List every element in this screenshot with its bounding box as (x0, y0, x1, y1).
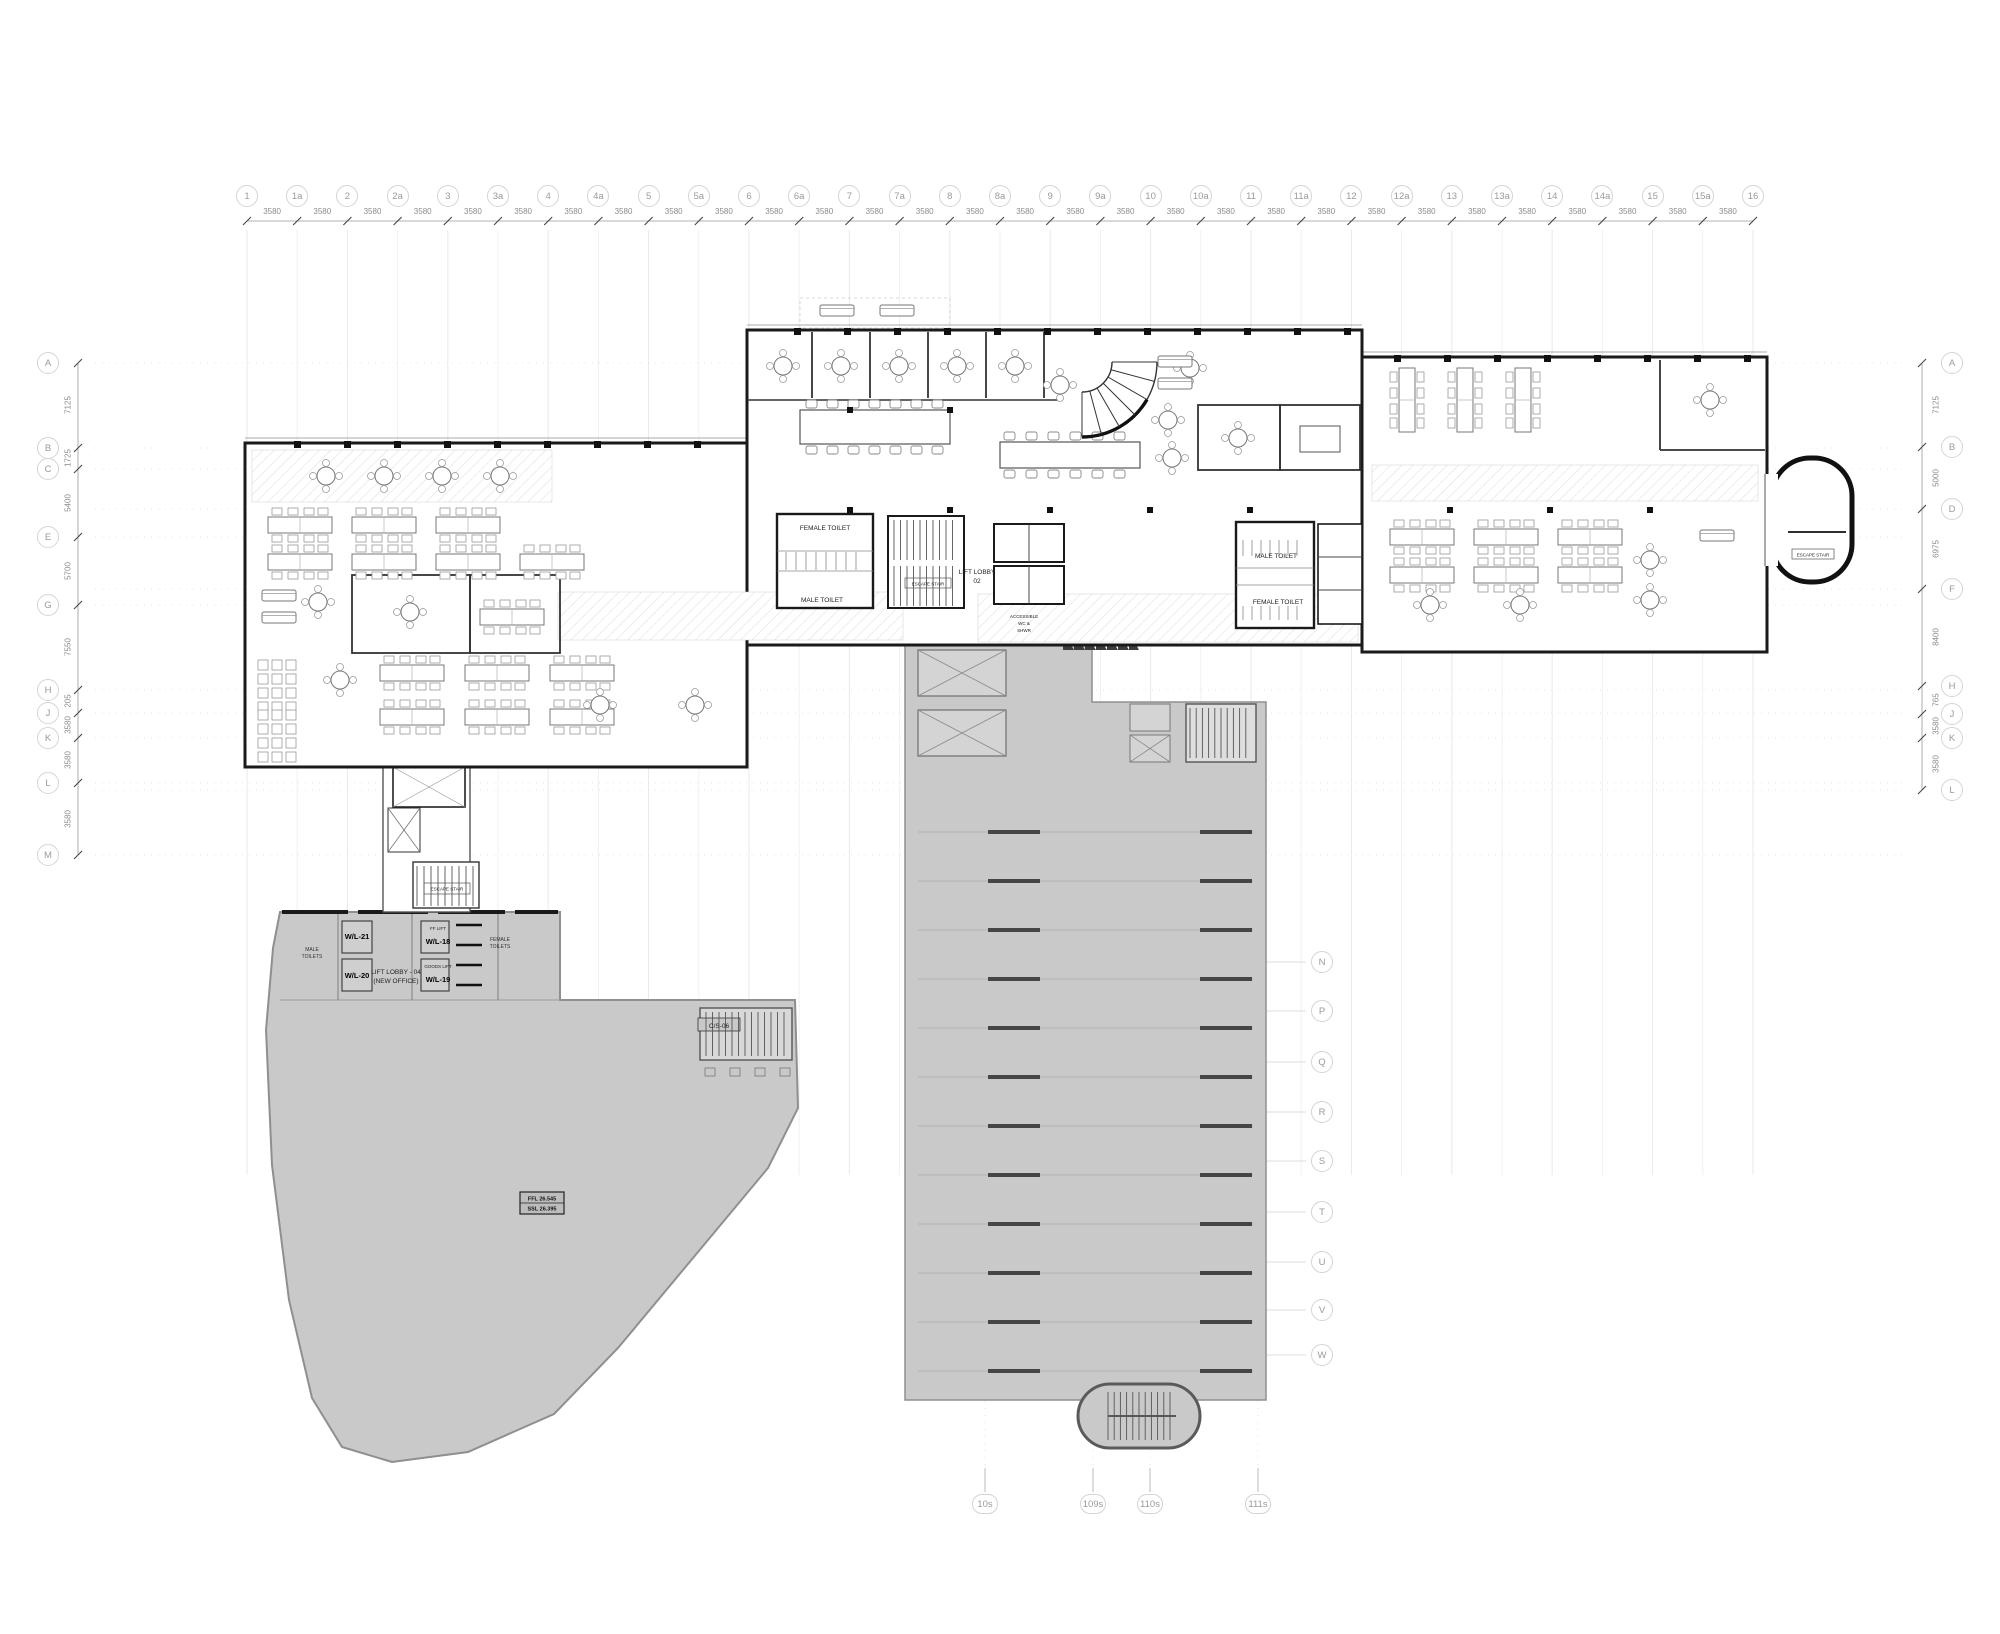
furniture (827, 400, 838, 408)
dimension-label: 1725 (64, 449, 73, 467)
svg-text:TOILETS: TOILETS (302, 954, 323, 960)
dimension-label: 3580 (1518, 207, 1536, 216)
furniture (890, 400, 901, 408)
grid-bubble-16: 16 (1742, 185, 1764, 207)
dimension-label: 7125 (64, 396, 73, 414)
grid-bubble-5: 5 (638, 185, 660, 207)
dimension-label: 3580 (665, 207, 683, 216)
dimension-label: 3580 (1016, 207, 1034, 216)
furniture (1158, 356, 1192, 367)
grid-bubble-U: U (1311, 1251, 1333, 1273)
svg-text:02: 02 (973, 578, 981, 585)
escape-stair-capsule (1762, 458, 1852, 582)
furniture (806, 446, 817, 454)
dimension-label: 3580 (916, 207, 934, 216)
furniture (911, 446, 922, 454)
car-park-deck (905, 630, 1266, 1448)
dimension-label: 3580 (414, 207, 432, 216)
grid-bubble-4a: 4a (587, 185, 609, 207)
dimension-label: 3580 (1719, 207, 1737, 216)
grid-bubble-F: F (1941, 578, 1963, 600)
grid-bubble-110s: 110s (1137, 1494, 1163, 1514)
grid-bubble-A: A (1941, 352, 1963, 374)
label-escape-stair-3: ESCAPE STAIR (1797, 553, 1830, 558)
label-escape-stair-2: ESCAPE STAIR (431, 887, 464, 892)
grid-bubble-H: H (37, 679, 59, 701)
label-female-toilet-right: FEMALE TOILET (1253, 599, 1303, 606)
floor-plan-drawing: FEMALE TOILET MALE TOILET LIFT LOBBY 02 … (0, 0, 2000, 1634)
dimension-label: 7125 (1932, 396, 1941, 414)
label-wl19: W/L-19 (426, 975, 451, 984)
furniture (869, 400, 880, 408)
furniture (1004, 470, 1015, 478)
furniture (848, 400, 859, 408)
dimension-label: 3580 (966, 207, 984, 216)
dimension-label: 765 (1932, 693, 1941, 706)
furniture (1026, 432, 1037, 440)
dimension-label: 3580 (313, 207, 331, 216)
label-lift-lobby-04: LIFT LOBBY - 04 (371, 969, 421, 976)
grid-bubble-2a: 2a (387, 185, 409, 207)
furniture (262, 612, 296, 623)
dimension-label: 3580 (1932, 717, 1941, 735)
dimension-label: 3580 (1066, 207, 1084, 216)
dimension-label: 3580 (64, 810, 73, 828)
grid-bubble-14a: 14a (1591, 185, 1613, 207)
grid-bubble-4: 4 (537, 185, 559, 207)
dimension-label: 3580 (514, 207, 532, 216)
grid-bubble-B: B (37, 437, 59, 459)
grid-bubble-L: L (1941, 779, 1963, 801)
dimension-label: 3580 (263, 207, 281, 216)
grid-bubble-J: J (37, 702, 59, 724)
dimension-label: 3580 (1468, 207, 1486, 216)
dimension-label: 3580 (1368, 207, 1386, 216)
furniture (1026, 470, 1037, 478)
furniture (890, 446, 901, 454)
grid-bubble-10s: 10s (972, 1494, 998, 1514)
dimension-label: 3580 (1267, 207, 1285, 216)
grid-bubble-G: G (37, 594, 59, 616)
dimension-label: 3580 (1619, 207, 1637, 216)
grid-bubble-12a: 12a (1391, 185, 1413, 207)
grid-bubble-1: 1 (236, 185, 258, 207)
label-male-toilet-right: MALE TOILET (1255, 553, 1297, 560)
label-cs06: C/S-06 (709, 1023, 730, 1030)
grid-bubble-S: S (1311, 1150, 1333, 1172)
grid-bubble-111s: 111s (1245, 1494, 1271, 1514)
furniture (262, 590, 296, 601)
grid-bubble-6a: 6a (788, 185, 810, 207)
furniture (1700, 530, 1734, 541)
furniture (1158, 378, 1192, 389)
dimension-label: 3580 (1167, 207, 1185, 216)
dimension-label: 3580 (364, 207, 382, 216)
grid-bubble-T: T (1311, 1201, 1333, 1223)
label-ff-lift: FF LIFT (430, 926, 446, 931)
furniture (820, 305, 854, 316)
grid-bubble-R: R (1311, 1101, 1333, 1123)
grid-bubble-109s: 109s (1080, 1494, 1106, 1514)
grid-bubble-V: V (1311, 1299, 1333, 1321)
label-female-toilets: FEMALE (490, 937, 511, 943)
dimension-label: 5700 (64, 562, 73, 580)
furniture (1070, 432, 1081, 440)
label-accessible-wc: ACCESSIBLE (1010, 614, 1038, 619)
dimension-label: 3580 (866, 207, 884, 216)
furniture (827, 446, 838, 454)
grid-bubble-13: 13 (1441, 185, 1463, 207)
grid-bubble-3: 3 (437, 185, 459, 207)
furniture (848, 446, 859, 454)
dimension-label: 3580 (1568, 207, 1586, 216)
dimension-label: 3580 (1317, 207, 1335, 216)
grid-bubble-1a: 1a (286, 185, 308, 207)
svg-text:(NEW OFFICE): (NEW OFFICE) (373, 978, 418, 985)
grid-bubble-12: 12 (1340, 185, 1362, 207)
grid-bubble-W: W (1311, 1344, 1333, 1366)
dimension-label: 3580 (1932, 755, 1941, 773)
furniture (1092, 470, 1103, 478)
grid-bubble-J: J (1941, 703, 1963, 725)
grid-bubble-10a: 10a (1190, 185, 1212, 207)
grid-bubble-9a: 9a (1089, 185, 1111, 207)
furniture (869, 446, 880, 454)
grid-bubble-2: 2 (336, 185, 358, 207)
grid-bubble-D: D (1941, 498, 1963, 520)
furniture (1048, 470, 1059, 478)
grid-bubble-P: P (1311, 1000, 1333, 1022)
label-ffl: FFL 26.545 (528, 1197, 556, 1203)
grid-bubble-M: M (37, 844, 59, 866)
dimension-label: 205 (64, 694, 73, 707)
svg-text:SHWR: SHWR (1017, 628, 1031, 633)
grid-bubble-K: K (37, 727, 59, 749)
label-wl20: W/L-20 (345, 971, 370, 980)
label-male-toilet: MALE TOILET (801, 597, 843, 604)
label-lift-lobby-02: LIFT LOBBY (959, 569, 996, 576)
furniture (1114, 470, 1125, 478)
dimension-label: 3580 (564, 207, 582, 216)
grid-bubble-11a: 11a (1290, 185, 1312, 207)
grid-bubble-B: B (1941, 436, 1963, 458)
dimension-label: 3580 (715, 207, 733, 216)
grid-bubble-8: 8 (939, 185, 961, 207)
label-wl21: W/L-21 (345, 932, 370, 941)
grid-bubble-3a: 3a (487, 185, 509, 207)
grid-bubble-15: 15 (1642, 185, 1664, 207)
grid-bubble-N: N (1311, 951, 1333, 973)
furniture (880, 305, 914, 316)
dimension-label: 3580 (615, 207, 633, 216)
grid-bubble-A: A (37, 352, 59, 374)
dimension-label: 7550 (64, 638, 73, 656)
furniture (1114, 432, 1125, 440)
dimension-label: 3580 (1217, 207, 1235, 216)
dimension-label: 5400 (64, 494, 73, 512)
furniture (1004, 432, 1015, 440)
grid-bubble-6: 6 (738, 185, 760, 207)
label-female-toilet: FEMALE TOILET (800, 525, 850, 532)
label-ssl: SSL 26.395 (528, 1207, 557, 1213)
furniture (932, 400, 943, 408)
label-wl18: W/L-18 (426, 937, 451, 946)
dimension-label: 6975 (1932, 540, 1941, 558)
dimension-label: 3580 (1669, 207, 1687, 216)
dimension-label: 3580 (815, 207, 833, 216)
grid-bubble-5a: 5a (688, 185, 710, 207)
dimension-label: 3580 (1117, 207, 1135, 216)
furniture (806, 400, 817, 408)
dimension-label: 3580 (464, 207, 482, 216)
floor-plan-sheet: FEMALE TOILET MALE TOILET LIFT LOBBY 02 … (0, 0, 2000, 1634)
grid-bubble-14: 14 (1541, 185, 1563, 207)
lower-left-building (266, 912, 798, 1462)
label-male-toilets: MALE (305, 947, 319, 953)
dimension-label: 3580 (765, 207, 783, 216)
furniture (1070, 470, 1081, 478)
grid-bubble-L: L (37, 772, 59, 794)
grid-bubble-E: E (37, 526, 59, 548)
dimension-label: 3580 (64, 716, 73, 734)
label-escape-stair-1: ESCAPE STAIR (912, 582, 945, 587)
grid-bubble-11: 11 (1240, 185, 1262, 207)
furniture (911, 400, 922, 408)
grid-bubble-C: C (37, 458, 59, 480)
grid-bubble-10: 10 (1140, 185, 1162, 207)
grid-bubble-7: 7 (838, 185, 860, 207)
grid-bubble-15a: 15a (1692, 185, 1714, 207)
grid-bubble-H: H (1941, 675, 1963, 697)
grid-bubble-13a: 13a (1491, 185, 1513, 207)
grid-bubble-Q: Q (1311, 1051, 1333, 1073)
furniture (1048, 432, 1059, 440)
dimension-label: 5000 (1932, 469, 1941, 487)
dimension-label: 3580 (64, 751, 73, 769)
svg-text:WC &: WC & (1018, 621, 1030, 626)
dimension-label: 8400 (1932, 628, 1941, 646)
grid-bubble-8a: 8a (989, 185, 1011, 207)
label-goods-lift: GOODS LIFT (424, 964, 452, 969)
grid-bubble-9: 9 (1039, 185, 1061, 207)
grid-bubble-K: K (1941, 727, 1963, 749)
grid-bubble-7a: 7a (889, 185, 911, 207)
svg-text:TOILETS: TOILETS (490, 944, 511, 950)
dimension-label: 3580 (1418, 207, 1436, 216)
furniture (932, 446, 943, 454)
